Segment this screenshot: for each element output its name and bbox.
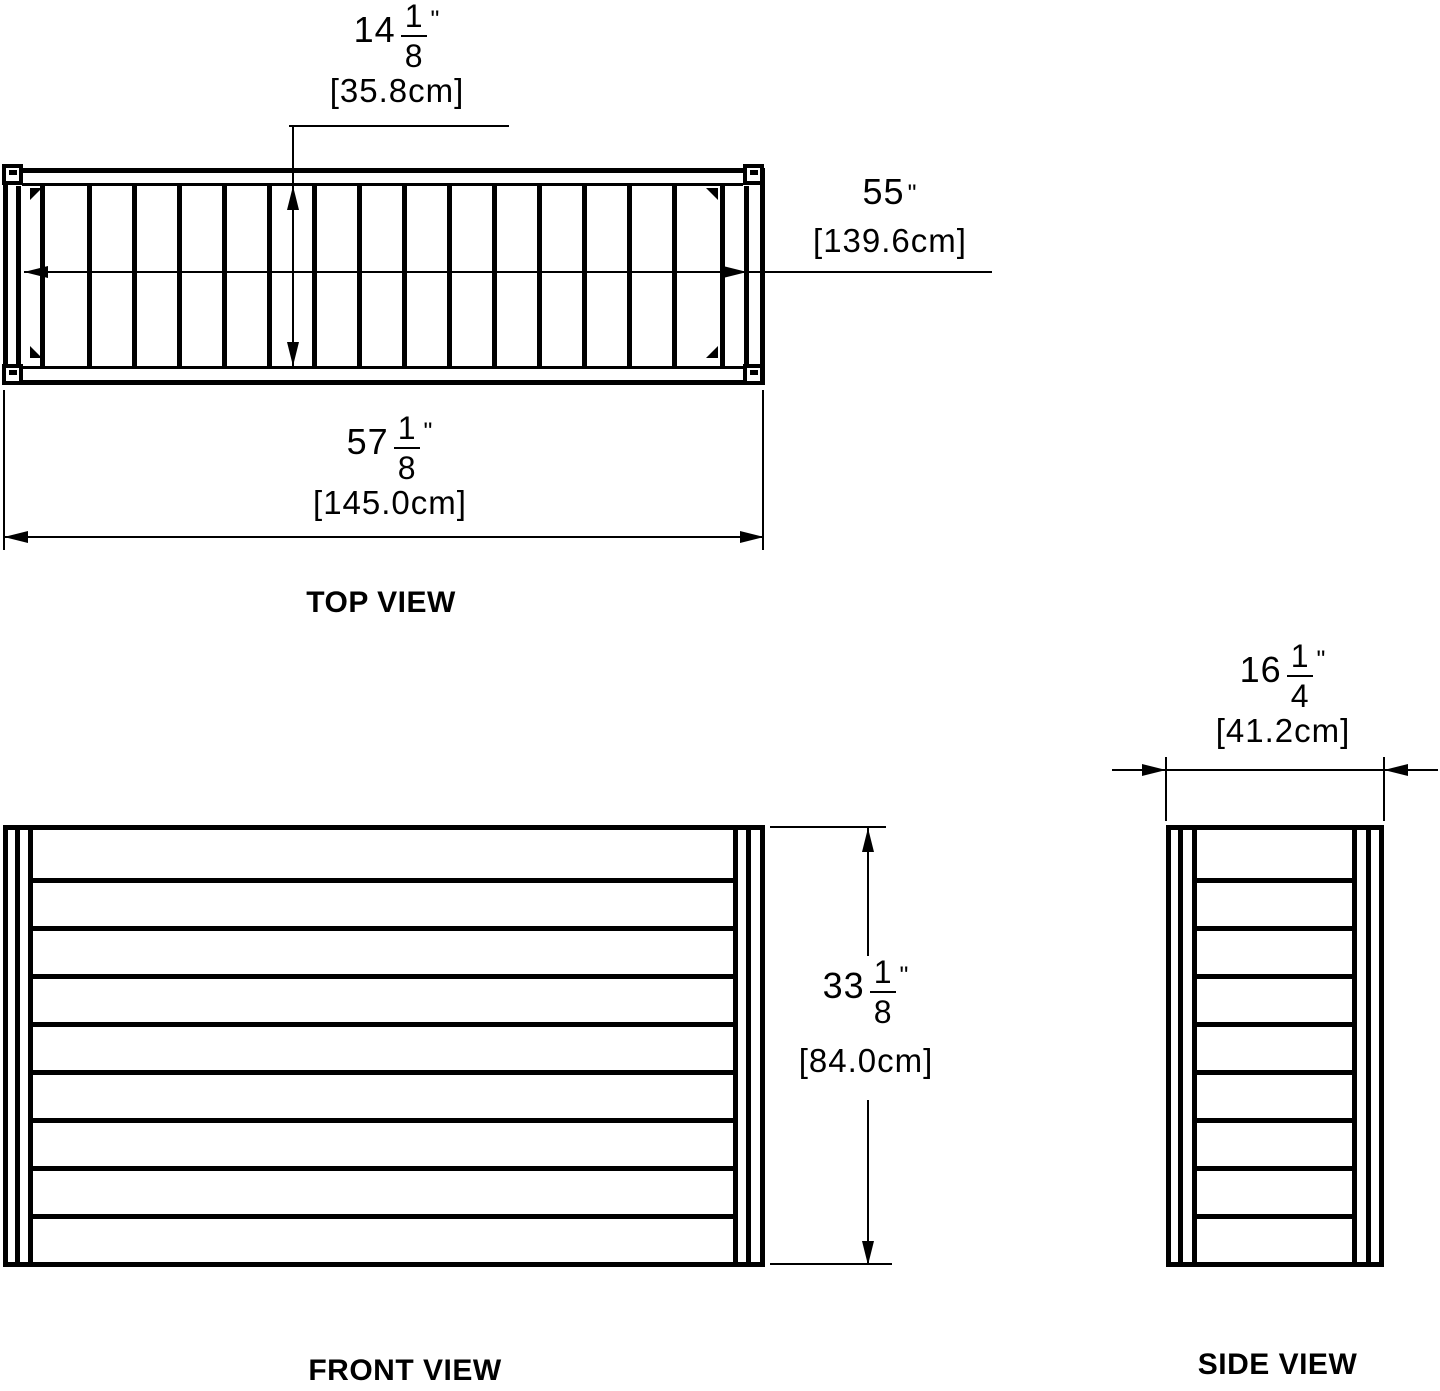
front-post-line (733, 830, 738, 1262)
width-inches-fraction: 14 (1287, 640, 1314, 712)
inner-width-arrow-right (723, 266, 747, 278)
height-dimension-text: 3318" (766, 956, 966, 1028)
overall-width-inches-fraction: 18 (394, 412, 421, 484)
side-board-divider (1197, 1118, 1352, 1123)
board-divider (33, 1214, 733, 1219)
height-dimension-arrow-up (862, 828, 874, 852)
overall-width-inches-whole: 57 (347, 412, 389, 460)
slat-divider (402, 186, 407, 366)
inch-mark: " (1316, 640, 1326, 673)
width-inches-whole: 16 (1240, 640, 1282, 688)
slat-divider (582, 186, 587, 366)
front-view-outline (3, 825, 765, 1267)
inch-mark: " (423, 412, 433, 445)
corner-weld-tick (30, 188, 42, 200)
board-divider (33, 1118, 733, 1123)
corner-bracket (2, 364, 23, 385)
extension-line (3, 390, 5, 550)
side-post-line (1352, 830, 1357, 1262)
inch-mark: " (430, 0, 440, 33)
board-divider (33, 1022, 733, 1027)
top-view-inner-rail-line (22, 183, 743, 186)
slat-divider (177, 186, 182, 366)
side-post-line (1178, 830, 1183, 1262)
inner-width-dimension-line (24, 271, 992, 273)
front-view-label: FRONT VIEW (270, 1354, 540, 1388)
board-divider (33, 926, 733, 931)
depth-inches-fraction: 18 (401, 0, 428, 72)
top-view-inner-rail-line (22, 366, 743, 369)
front-post-line (746, 830, 751, 1262)
depth-dimension-text: 1418" (297, 0, 497, 72)
slat-divider (672, 186, 677, 366)
inch-mark: " (908, 174, 918, 207)
side-board-divider (1197, 974, 1352, 979)
side-view-label: SIDE VIEW (1160, 1348, 1395, 1382)
width-dimension-arrow-right (1384, 764, 1408, 776)
slat-divider (492, 186, 497, 366)
top-view-outline (3, 168, 765, 385)
slat-divider (447, 186, 452, 366)
corner-weld-tick (30, 346, 42, 358)
board-divider (33, 974, 733, 979)
side-board-divider (1197, 1166, 1352, 1171)
overall-width-dimension-metric: [145.0cm] (290, 484, 490, 522)
slat-divider (627, 186, 632, 366)
technical-drawing: 1418" [35.8cm] 55" [139.6cm] 5718" [145.… (0, 0, 1440, 1391)
top-view-end-rail-line (16, 186, 21, 366)
side-board-divider (1197, 1022, 1352, 1027)
overall-width-arrow-left (4, 531, 28, 543)
inner-width-arrow-left (24, 266, 48, 278)
width-dimension-metric: [41.2cm] (1183, 712, 1383, 750)
corner-bracket-dot (9, 170, 17, 175)
depth-dimension-arrow-down (287, 342, 299, 366)
inner-width-dimension-metric: [139.6cm] (790, 222, 990, 260)
depth-dimension-line (292, 126, 294, 366)
height-inches-fraction: 18 (870, 956, 897, 1028)
corner-bracket (743, 164, 764, 185)
slat-divider (267, 186, 272, 366)
height-dimension-metric: [84.0cm] (766, 1042, 966, 1080)
inner-width-inches: 55 (863, 174, 905, 210)
width-dimension-arrow-left (1142, 764, 1166, 776)
slat-divider (537, 186, 542, 366)
depth-dimension-arrow-up (287, 186, 299, 210)
corner-bracket (743, 364, 764, 385)
board-divider (33, 878, 733, 883)
side-board-divider (1197, 1214, 1352, 1219)
corner-bracket-dot (750, 370, 758, 375)
corner-weld-tick (706, 188, 718, 200)
slat-divider (87, 186, 92, 366)
slat-divider (357, 186, 362, 366)
side-board-divider (1197, 878, 1352, 883)
overall-width-dimension-text: 5718" (290, 412, 490, 484)
slat-divider (222, 186, 227, 366)
inner-width-dimension-text: 55" (790, 174, 990, 210)
side-board-divider (1197, 1070, 1352, 1075)
corner-bracket (2, 164, 23, 185)
height-inches-whole: 33 (823, 956, 865, 1004)
depth-dimension-metric: [35.8cm] (297, 72, 497, 110)
side-post-line (1192, 830, 1197, 1262)
overall-width-arrow-right (740, 531, 764, 543)
overall-width-dimension-line (4, 536, 764, 538)
extension-line (762, 390, 764, 550)
front-post-line (28, 830, 33, 1262)
corner-bracket-dot (750, 170, 758, 175)
top-view-label: TOP VIEW (256, 586, 506, 620)
corner-weld-tick (706, 346, 718, 358)
slat-divider (312, 186, 317, 366)
board-divider (33, 1166, 733, 1171)
side-board-divider (1197, 926, 1352, 931)
front-post-line (15, 830, 20, 1262)
corner-bracket-dot (9, 370, 17, 375)
depth-dimension-leader (289, 125, 509, 127)
inch-mark: " (899, 956, 909, 989)
width-dimension-text: 1614" (1183, 640, 1383, 712)
side-post-line (1366, 830, 1371, 1262)
board-divider (33, 1070, 733, 1075)
slat-divider (132, 186, 137, 366)
depth-inches-whole: 14 (354, 0, 396, 48)
height-dimension-arrow-down (862, 1241, 874, 1265)
